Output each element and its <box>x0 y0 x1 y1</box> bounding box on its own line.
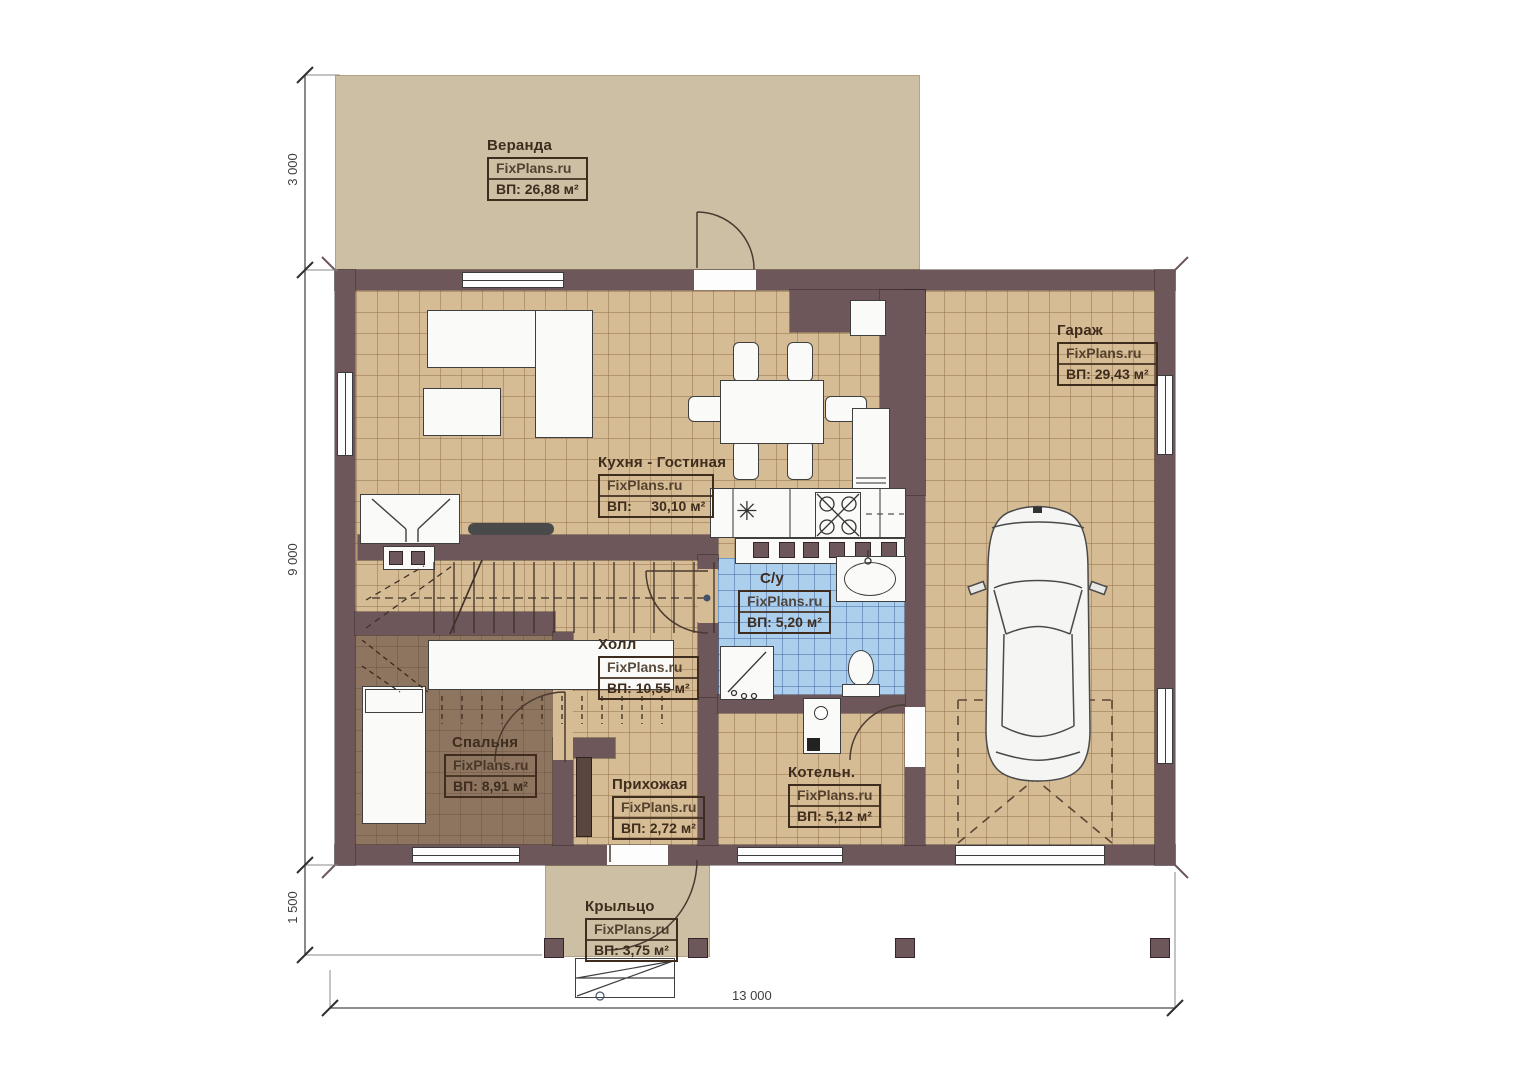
room-info-box: FixPlans.ru ВП: 2,72 м² <box>612 796 705 840</box>
veranda-floor <box>335 75 920 270</box>
room-info-box: FixPlans.ru ВП: 26,88 м² <box>487 157 588 201</box>
room-label-veranda: Веранда FixPlans.ru ВП: 26,88 м² <box>487 137 588 201</box>
room-name: С/у <box>760 570 831 587</box>
dim-veranda-depth: 3 000 <box>285 153 300 186</box>
window-living-top <box>462 272 564 288</box>
watermark: FixPlans.ru <box>587 920 676 941</box>
room-name: Веранда <box>487 137 588 154</box>
porch-post <box>544 938 564 958</box>
watermark: FixPlans.ru <box>600 658 697 679</box>
porch-post <box>688 938 708 958</box>
stove <box>815 492 861 538</box>
watermark: FixPlans.ru <box>790 786 879 807</box>
garage-door-opening <box>955 845 1105 865</box>
boiler-gauge <box>814 706 828 720</box>
room-area: ВП: 26,88 м² <box>489 180 586 199</box>
room-area: ВП: 8,91 м² <box>446 777 535 796</box>
room-label-porch: Крыльцо FixPlans.ru ВП: 3,75 м² <box>585 898 678 962</box>
wall-bedroom-right-lower <box>553 760 573 845</box>
wall-bedroom-top <box>355 612 555 635</box>
room-label-entry: Прихожая FixPlans.ru ВП: 2,72 м² <box>612 776 705 840</box>
room-info-box: FixPlans.ru ВП: 29,43 м² <box>1057 342 1158 386</box>
wall-right <box>1155 270 1175 865</box>
watermark: FixPlans.ru <box>1059 344 1156 365</box>
dim-porch-depth: 1 500 <box>285 891 300 924</box>
wall-left <box>335 270 355 865</box>
room-label-kitchen-living: Кухня - Гостиная FixPlans.ru ВП: 30,10 м… <box>598 454 726 518</box>
watermark: FixPlans.ru <box>740 592 829 613</box>
cabinet-drawer <box>779 542 795 558</box>
cabinet-drawer <box>753 542 769 558</box>
room-name: Прихожая <box>612 776 705 793</box>
roof-post <box>1150 938 1170 958</box>
wall-bath-left-upper <box>698 555 718 569</box>
room-info-box: FixPlans.ru ВП: 30,10 м² <box>598 474 714 518</box>
tv-bench <box>468 523 554 535</box>
entry-wardrobe <box>576 757 592 837</box>
fireplace <box>360 494 460 544</box>
sofa-chaise <box>535 310 593 438</box>
room-area: ВП: 5,20 м² <box>740 613 829 632</box>
front-door-opening <box>607 845 668 865</box>
boiler-garage-door-opening <box>905 707 925 767</box>
room-info-box: FixPlans.ru ВП: 5,20 м² <box>738 590 831 634</box>
toilet-bowl <box>848 650 874 686</box>
room-info-box: FixPlans.ru ВП: 8,91 м² <box>444 754 537 798</box>
room-label-hall: Холл FixPlans.ru ВП: 10,55 м² <box>598 636 699 700</box>
dining-table <box>720 380 824 444</box>
room-area: ВП: 29,43 м² <box>1059 365 1156 384</box>
room-area: ВП: 5,12 м² <box>790 807 879 826</box>
room-name: Холл <box>598 636 699 653</box>
washbasin <box>844 562 896 596</box>
roof-post <box>895 938 915 958</box>
room-info-box: FixPlans.ru ВП: 3,75 м² <box>585 918 678 962</box>
room-label-bedroom: Спальня FixPlans.ru ВП: 8,91 м² <box>444 734 537 798</box>
dining-chair <box>733 440 759 480</box>
sink-icon: ✳ <box>736 496 758 527</box>
window-boiler-bottom <box>737 847 843 863</box>
dim-house-depth: 9 000 <box>285 543 300 576</box>
room-name: Спальня <box>452 734 537 751</box>
dim-total-width: 13 000 <box>732 988 772 1003</box>
boiler-port <box>807 738 820 751</box>
dining-chair <box>787 342 813 382</box>
coffee-table <box>423 388 501 436</box>
room-area: ВП: 10,55 м² <box>600 679 697 698</box>
floor-plan: ✳ <box>0 0 1528 1080</box>
room-name: Кухня - Гостиная <box>598 454 726 471</box>
shower <box>720 646 774 700</box>
fireplace-cabinet-door <box>411 551 425 565</box>
tall-cabinet <box>850 300 886 336</box>
fireplace-cabinet-door <box>389 551 403 565</box>
room-info-box: FixPlans.ru ВП: 10,55 м² <box>598 656 699 700</box>
veranda-door-opening <box>694 270 756 290</box>
watermark: FixPlans.ru <box>446 756 535 777</box>
room-label-bathroom: С/у FixPlans.ru ВП: 5,20 м² <box>738 570 831 634</box>
room-label-boiler: Котельн. FixPlans.ru ВП: 5,12 м² <box>788 764 881 828</box>
watermark: FixPlans.ru <box>614 798 703 819</box>
bedroom-door-opening <box>553 690 573 760</box>
room-name: Котельн. <box>788 764 881 781</box>
watermark: FixPlans.ru <box>600 476 712 497</box>
bed-pillow <box>365 689 423 713</box>
window-bedroom-bottom <box>412 847 520 863</box>
room-name: Гараж <box>1057 322 1158 339</box>
window-living-left <box>337 372 353 456</box>
window-garage-right-upper <box>1157 375 1173 455</box>
toilet-tank <box>842 684 880 697</box>
window-garage-right-lower <box>1157 688 1173 764</box>
wall-bath-left-lower <box>698 623 718 697</box>
room-name: Крыльцо <box>585 898 678 915</box>
room-area: ВП: 30,10 м² <box>600 497 712 516</box>
bathroom-door-opening <box>698 569 718 623</box>
dining-chair <box>733 342 759 382</box>
room-area: ВП: 3,75 м² <box>587 941 676 960</box>
watermark: FixPlans.ru <box>489 159 586 180</box>
room-info-box: FixPlans.ru ВП: 5,12 м² <box>788 784 881 828</box>
room-area: ВП: 2,72 м² <box>614 819 703 838</box>
cabinet-drawer <box>803 542 819 558</box>
room-label-garage: Гараж FixPlans.ru ВП: 29,43 м² <box>1057 322 1158 386</box>
dining-chair <box>787 440 813 480</box>
fridge <box>852 408 890 490</box>
porch-steps <box>575 958 675 998</box>
